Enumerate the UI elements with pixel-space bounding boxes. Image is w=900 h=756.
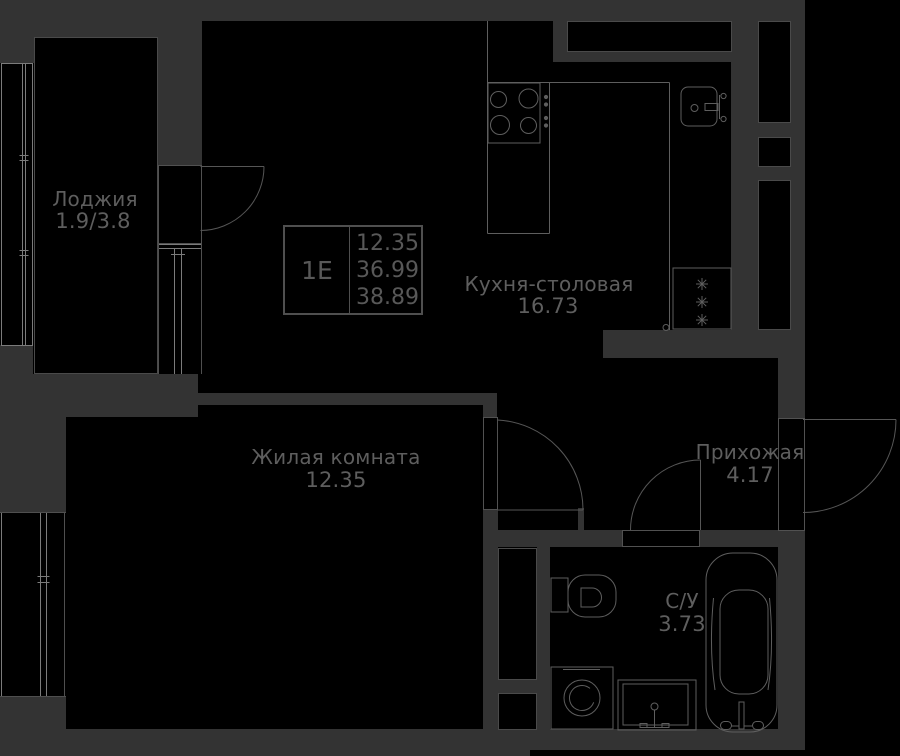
hall-label: Прихожая (696, 440, 805, 464)
unit-area-total: 38.89 (356, 284, 421, 311)
unit-type: 1Е (285, 227, 350, 313)
kitchen-label: Кухня-столовая (465, 272, 634, 296)
bathtub-icon (706, 553, 777, 732)
unit-areas: 12.35 36.99 38.89 (350, 227, 421, 313)
loggia-glazing-window (2, 64, 33, 346)
living-room-window (0, 512, 66, 697)
living-area: 12.35 (305, 468, 366, 492)
washing-machine-icon (551, 667, 613, 729)
unit-area-usable: 36.99 (356, 257, 421, 284)
bath-area: 3.73 (658, 612, 706, 636)
bath-door-swing (631, 460, 701, 530)
hall-area: 4.17 (726, 463, 774, 487)
kitchen-area: 16.73 (517, 294, 578, 318)
stove-icon (488, 83, 548, 143)
kitchen-sink-icon (681, 87, 726, 126)
fridge-snowflake-marks (696, 278, 708, 326)
entry-door-swing (803, 420, 896, 513)
toilet-icon (551, 575, 616, 617)
loggia-area: 1.9/3.8 (55, 209, 130, 233)
unit-area-living: 12.35 (356, 230, 421, 257)
unit-info-box: 1Е 12.35 36.99 38.89 (283, 225, 423, 315)
living-label: Жилая комната (251, 445, 420, 469)
fridge-icon (673, 268, 731, 329)
living-door-swing (498, 420, 584, 510)
bath-label: С/У (665, 589, 699, 613)
balcony-window (158, 244, 202, 374)
loggia-label: Лоджия (52, 187, 137, 211)
plan-linework (0, 0, 900, 756)
floor-plan: 1Е 12.35 36.99 38.89 Лоджия 1.9/3.8 Кухн… (0, 0, 900, 756)
vanity-sink-icon (618, 680, 696, 730)
balcony-door-swing (201, 167, 265, 231)
